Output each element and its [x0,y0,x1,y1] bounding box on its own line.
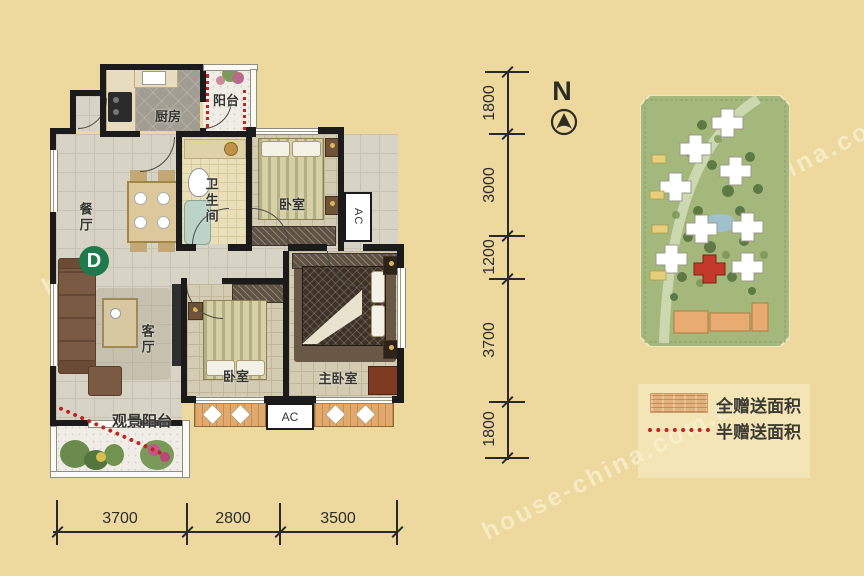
dimension-value: 1200 [481,227,499,287]
site-plan [640,95,790,347]
dimension-value: 1800 [481,73,499,133]
legend-half-gift-swatch [648,428,710,432]
dimension-value: 3700 [481,310,499,370]
legend: 全赠送面积 半赠送面积 [638,384,810,478]
legend-full-gift-swatch [650,393,708,413]
floor-plan-page: house-china.com.cn house-china.com.cn ho… [0,0,864,576]
dimension-value: 1800 [481,399,499,459]
dimension-value: 3000 [481,155,499,215]
legend-half-gift-label: 半赠送面积 [716,418,801,443]
north-label: N [546,76,578,107]
north-arrow-icon [550,108,578,136]
compass: N [540,76,600,142]
legend-full-gift-label: 全赠送面积 [716,392,801,417]
